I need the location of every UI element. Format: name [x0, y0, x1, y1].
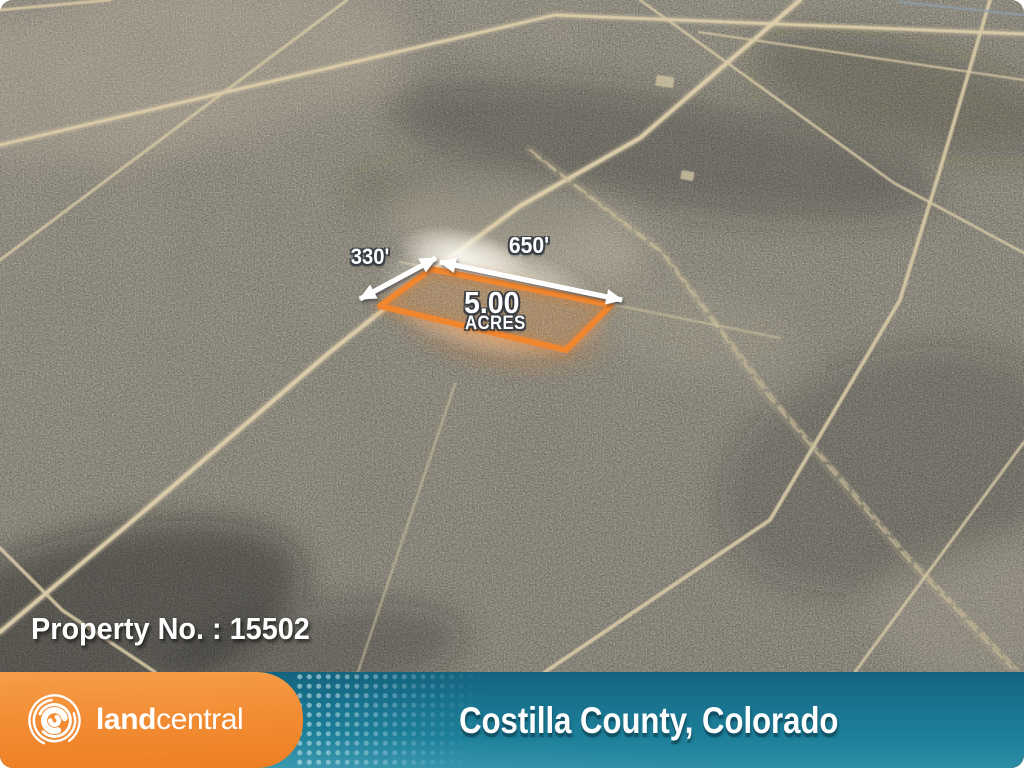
property-flyer-image: 650' 330' 5.00 ACRES Property No. : 1550…: [0, 0, 1024, 768]
parcel-acreage-unit: ACRES: [465, 314, 526, 333]
aerial-terrain-photo: [0, 0, 1024, 768]
terrain-graphics: [0, 0, 1024, 768]
property-number-label: Property No. : 15502: [31, 613, 310, 644]
left-dimension-label: 330': [331, 246, 408, 268]
top-dimension-label: 650': [490, 234, 567, 257]
footer-brand-bar: landcentral: [0, 672, 303, 768]
brand-word-central: central: [156, 703, 243, 736]
brand-wordmark: landcentral: [96, 705, 243, 735]
landcentral-swirl-icon: [26, 692, 83, 749]
footer-location-wrap: Costilla County, Colorado: [303, 672, 1024, 768]
brand-word-land: land: [96, 703, 156, 736]
location-title: Costilla County, Colorado: [459, 702, 838, 739]
